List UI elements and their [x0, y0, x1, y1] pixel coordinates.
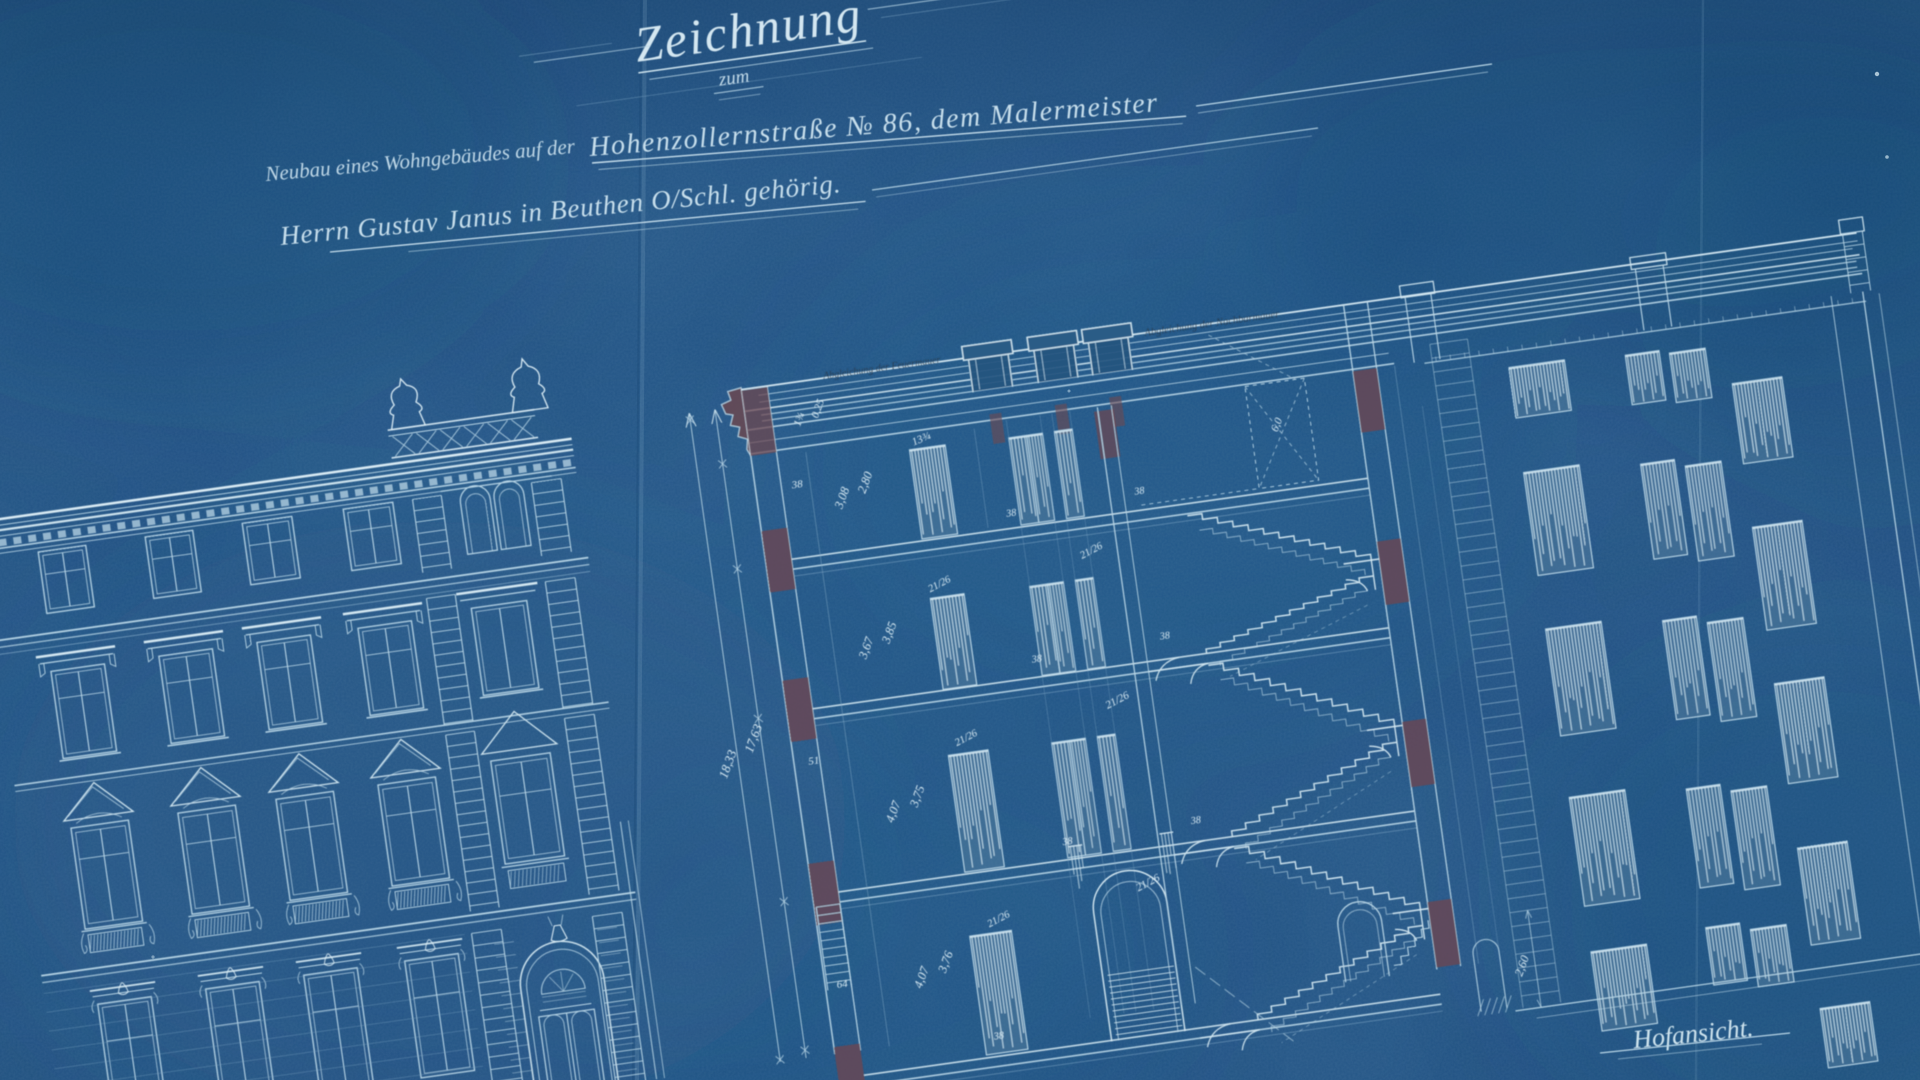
svg-text:38: 38 [1133, 486, 1145, 498]
svg-text:38: 38 [1005, 508, 1017, 520]
svg-text:zum: zum [716, 66, 750, 91]
svg-text:51: 51 [808, 754, 821, 767]
svg-text:38: 38 [1158, 630, 1170, 642]
svg-text:64: 64 [836, 978, 849, 991]
svg-text:38: 38 [1189, 815, 1201, 827]
svg-text:38: 38 [1061, 836, 1073, 848]
svg-text:38: 38 [992, 1030, 1004, 1042]
svg-text:38: 38 [790, 478, 804, 492]
svg-text:38: 38 [1030, 653, 1042, 665]
